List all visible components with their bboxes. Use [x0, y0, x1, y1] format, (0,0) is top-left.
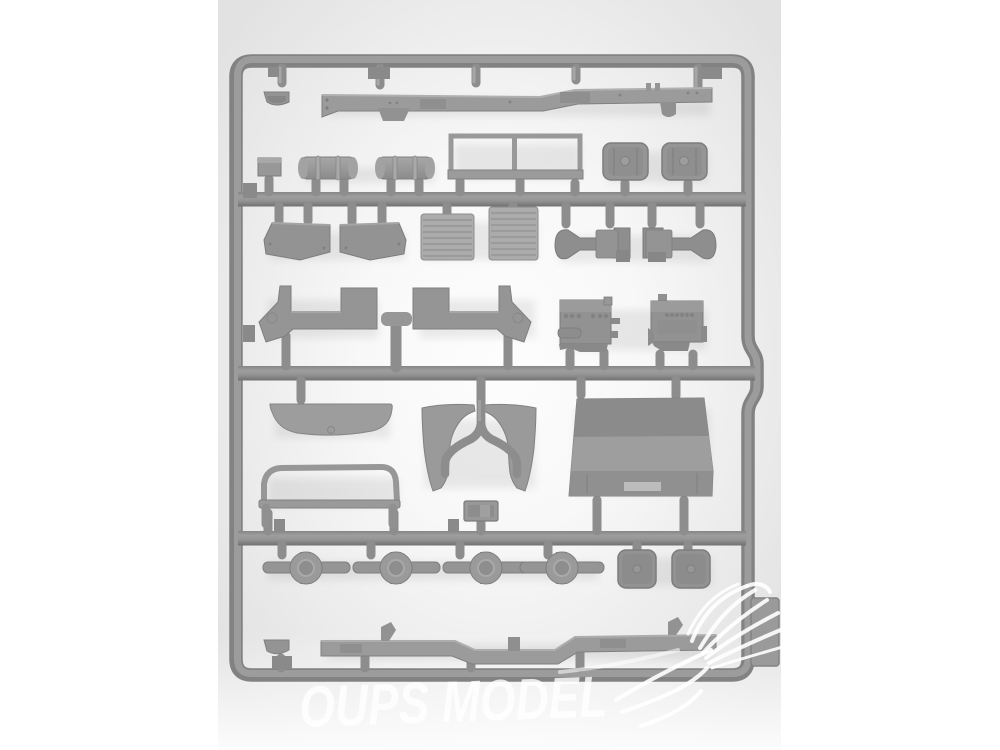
svg-text:OUPS MODEL: OUPS MODEL: [298, 664, 608, 740]
